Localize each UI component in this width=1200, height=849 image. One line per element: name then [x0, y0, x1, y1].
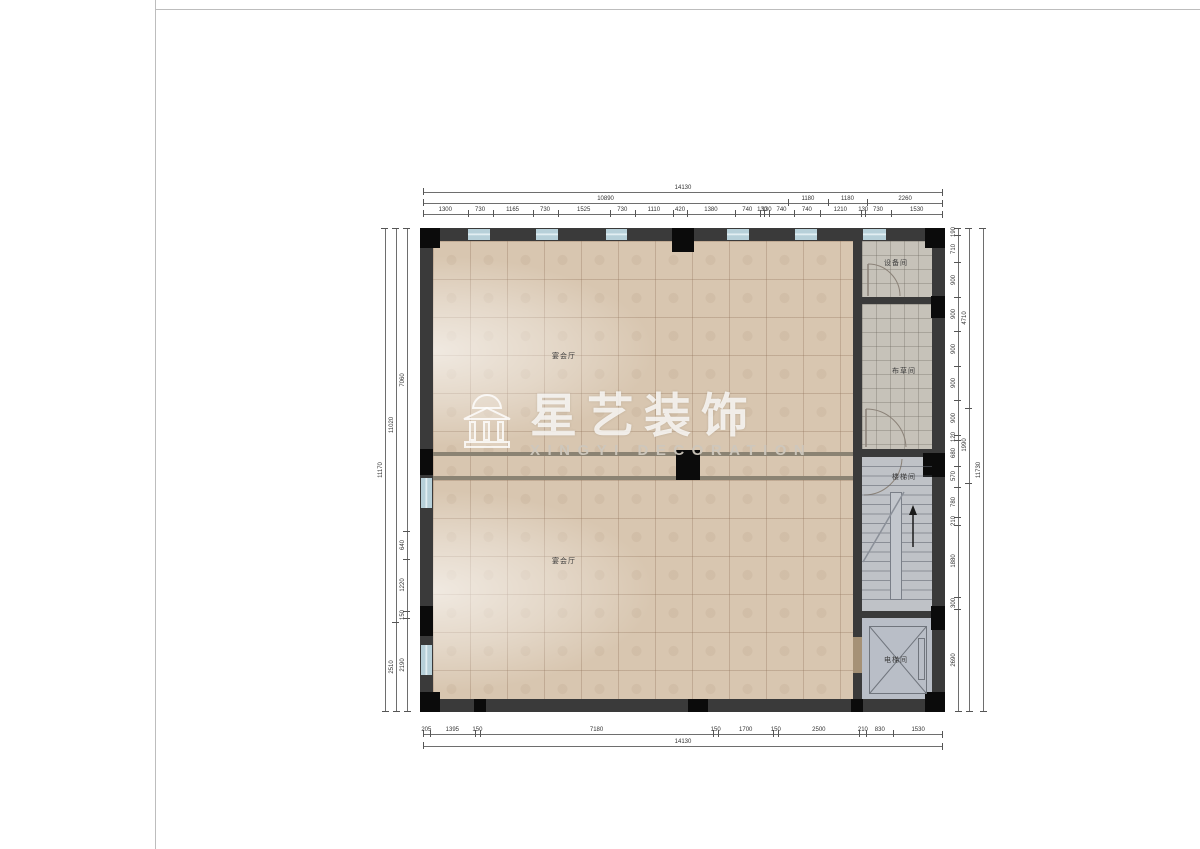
- dimension-segment: 740: [794, 206, 819, 215]
- dim-bottom-detail: 20513951507180150170015025002108301530: [423, 726, 943, 735]
- dimension-segment: 4710: [961, 228, 970, 408]
- partition-track-bottom: [433, 476, 853, 480]
- column: [688, 699, 708, 712]
- dimension-segment: 1530: [891, 206, 943, 215]
- dim-left-middle: 110202510: [388, 228, 397, 712]
- dimension-segment: 10890: [423, 195, 788, 204]
- dimension-segment: 14130: [423, 184, 943, 193]
- column: [931, 606, 945, 630]
- column: [925, 692, 945, 712]
- dim-top-detail: 1300730116573015257301110420138074013013…: [423, 206, 943, 215]
- room-label-banquet-lower: 宴会厅: [552, 556, 576, 566]
- elevator-door: [853, 637, 862, 673]
- dim-right-outer: 11730: [975, 228, 984, 712]
- dimension-segment: 730: [533, 206, 558, 215]
- dim-right-inner: 1907109009009009009001206805707802101880…: [950, 228, 959, 712]
- stair-up-arrow-icon: [907, 505, 919, 549]
- dimension-segment: 640: [399, 531, 408, 559]
- light-fan-upper: [433, 252, 663, 450]
- dimension-segment: 1880: [950, 525, 959, 597]
- window-icon: [468, 229, 490, 240]
- dimension-segment: 7180: [480, 726, 713, 735]
- dimension-segment: 11730: [975, 228, 984, 712]
- dimension-segment: 730: [468, 206, 493, 215]
- dimension-segment: 740: [735, 206, 760, 215]
- dimension-segment: 680: [950, 440, 959, 466]
- dimension-segment: 1530: [893, 726, 943, 735]
- window-icon: [727, 229, 749, 240]
- dimension-segment: 1180: [828, 195, 868, 204]
- dimension-segment: 780: [950, 487, 959, 517]
- window-icon: [606, 229, 627, 240]
- wall-stair-elevator: [862, 611, 932, 618]
- stair-break-line: [862, 490, 906, 564]
- dim-left-inner: 706064012201502190: [399, 228, 408, 712]
- column: [925, 228, 945, 248]
- dimension-segment: 740: [769, 206, 794, 215]
- window-icon: [421, 478, 432, 508]
- column: [420, 692, 440, 712]
- dimension-segment: 205: [423, 726, 430, 735]
- dim-top-total: 14130: [423, 184, 943, 193]
- dimension-segment: 710: [950, 235, 959, 262]
- dimension-segment: 2690: [950, 609, 959, 712]
- column: [474, 699, 486, 712]
- dimension-segment: 830: [866, 726, 893, 735]
- dimension-segment: 11170: [377, 228, 386, 712]
- sheet-border-top: [155, 9, 1200, 10]
- dimension-segment: 420: [673, 206, 687, 215]
- column: [420, 606, 433, 636]
- column: [676, 450, 700, 480]
- dimension-segment: 900: [950, 400, 959, 434]
- floor-plan-sheet: 宴会厅 宴会厅 设备间 布草间 楼梯间 电梯间 14130 1089011801…: [0, 0, 1200, 849]
- window-icon: [795, 229, 817, 240]
- door-arc-linen: [862, 407, 908, 449]
- dimension-segment: 1990: [961, 408, 970, 484]
- dimension-segment: 900: [950, 297, 959, 331]
- dimension-segment: 1300: [423, 206, 468, 215]
- column: [420, 228, 440, 248]
- window-icon: [536, 229, 558, 240]
- window-icon: [863, 229, 886, 240]
- column: [851, 699, 863, 712]
- dimension-segment: 7060: [399, 228, 408, 531]
- column: [420, 449, 433, 475]
- dimension-segment: 900: [950, 331, 959, 365]
- sheet-border-left: [155, 0, 156, 849]
- dimension-segment: 11020: [388, 228, 397, 622]
- dimension-segment: 730: [865, 206, 890, 215]
- column: [672, 228, 694, 252]
- dimension-segment: 1165: [493, 206, 533, 215]
- wall-bottom: [420, 699, 945, 712]
- wall-equipment-linen: [862, 297, 932, 304]
- dimension-segment: 2190: [399, 618, 408, 712]
- dimension-segment: 210: [950, 517, 959, 525]
- dimension-segment: 1395: [430, 726, 475, 735]
- wall-linen-stair: [862, 449, 932, 457]
- dimension-segment: [961, 483, 970, 712]
- elevator-counterweight: [918, 638, 925, 680]
- dimension-segment: 2260: [867, 195, 943, 204]
- room-label-elevator: 电梯间: [884, 655, 908, 665]
- partition-track-top: [433, 452, 853, 456]
- dimension-segment: 300: [950, 597, 959, 609]
- dim-top-groups: 10890118011802260: [423, 195, 943, 204]
- room-label-banquet-upper: 宴会厅: [552, 351, 576, 361]
- dimension-segment: 2500: [778, 726, 859, 735]
- dimension-segment: 1110: [635, 206, 673, 215]
- dimension-segment: 570: [950, 466, 959, 488]
- dim-bottom-total: 14130: [423, 738, 943, 747]
- room-label-equipment: 设备间: [884, 258, 908, 268]
- room-label-linen: 布草间: [892, 366, 916, 376]
- dimension-segment: 1700: [718, 726, 773, 735]
- dimension-segment: 1180: [788, 195, 828, 204]
- dimension-segment: 900: [950, 262, 959, 296]
- dimension-segment: 1380: [687, 206, 734, 215]
- dimension-segment: 14130: [423, 738, 943, 747]
- room-label-stair: 楼梯间: [892, 472, 916, 482]
- dimension-segment: 2510: [388, 622, 397, 712]
- dimension-segment: 1210: [820, 206, 861, 215]
- dim-right-middle: 47101990: [961, 228, 970, 712]
- dimension-segment: 1525: [558, 206, 610, 215]
- dimension-segment: 900: [950, 366, 959, 400]
- window-icon: [421, 645, 432, 675]
- dim-left-outer: 11170: [377, 228, 386, 712]
- dimension-segment: 730: [610, 206, 635, 215]
- column: [931, 296, 945, 318]
- light-fan-lower: [433, 486, 663, 696]
- dimension-segment: 1220: [399, 559, 408, 611]
- dimension-segment: 190: [950, 228, 959, 235]
- dimension-segment: 210: [859, 726, 866, 735]
